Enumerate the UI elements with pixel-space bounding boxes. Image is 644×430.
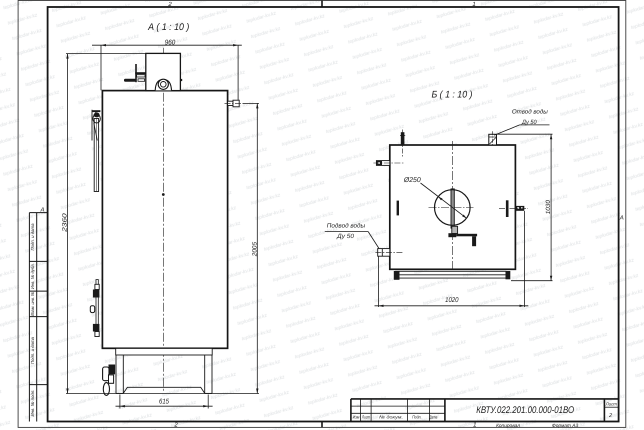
svg-text:2: 2: [173, 422, 178, 429]
svg-text:Подп.: Подп.: [412, 415, 421, 420]
svg-text:1030: 1030: [545, 200, 552, 215]
svg-text:1: 1: [472, 1, 475, 8]
svg-text:Ø250: Ø250: [403, 176, 421, 184]
svg-text:Дата: Дата: [428, 415, 437, 420]
svg-text:Подп. и дата: Подп. и дата: [30, 223, 35, 251]
svg-text:Отвод воды: Отвод воды: [512, 109, 548, 116]
svg-text:2: 2: [167, 1, 172, 8]
svg-text:1020: 1020: [445, 297, 458, 304]
svg-text:Лист: Лист: [605, 402, 618, 407]
svg-text:Б ( 1 : 10 ): Б ( 1 : 10 ): [432, 90, 473, 101]
svg-text:1: 1: [473, 422, 476, 429]
svg-text:Лист: Лист: [361, 415, 370, 420]
svg-text:А ( 1 : 10 ): А ( 1 : 10 ): [147, 22, 189, 33]
svg-text:А: А: [619, 215, 624, 222]
svg-text:Ду 50: Ду 50: [336, 233, 354, 240]
svg-text:2005: 2005: [251, 241, 258, 257]
svg-text:Формат А3: Формат А3: [552, 423, 579, 429]
svg-text:Инв. № дубл.: Инв. № дубл.: [30, 263, 35, 289]
svg-text:Инв. № подл.: Инв. № подл.: [30, 390, 35, 417]
svg-text:Взам. инв. №: Взам. инв. №: [30, 292, 35, 316]
svg-text:КВТУ.022.201.00.000-01ВО: КВТУ.022.201.00.000-01ВО: [476, 405, 574, 416]
svg-text:Изм: Изм: [353, 415, 360, 420]
svg-text:Копировал: Копировал: [496, 423, 520, 429]
svg-text:960: 960: [165, 39, 176, 46]
svg-text:615: 615: [159, 399, 169, 406]
svg-text:№ докум.: № докум.: [379, 415, 403, 420]
svg-text:Подвод воды: Подвод воды: [327, 223, 366, 230]
svg-text:2360: 2360: [62, 213, 69, 234]
svg-text:Подп. и дата: Подп. и дата: [30, 337, 35, 365]
